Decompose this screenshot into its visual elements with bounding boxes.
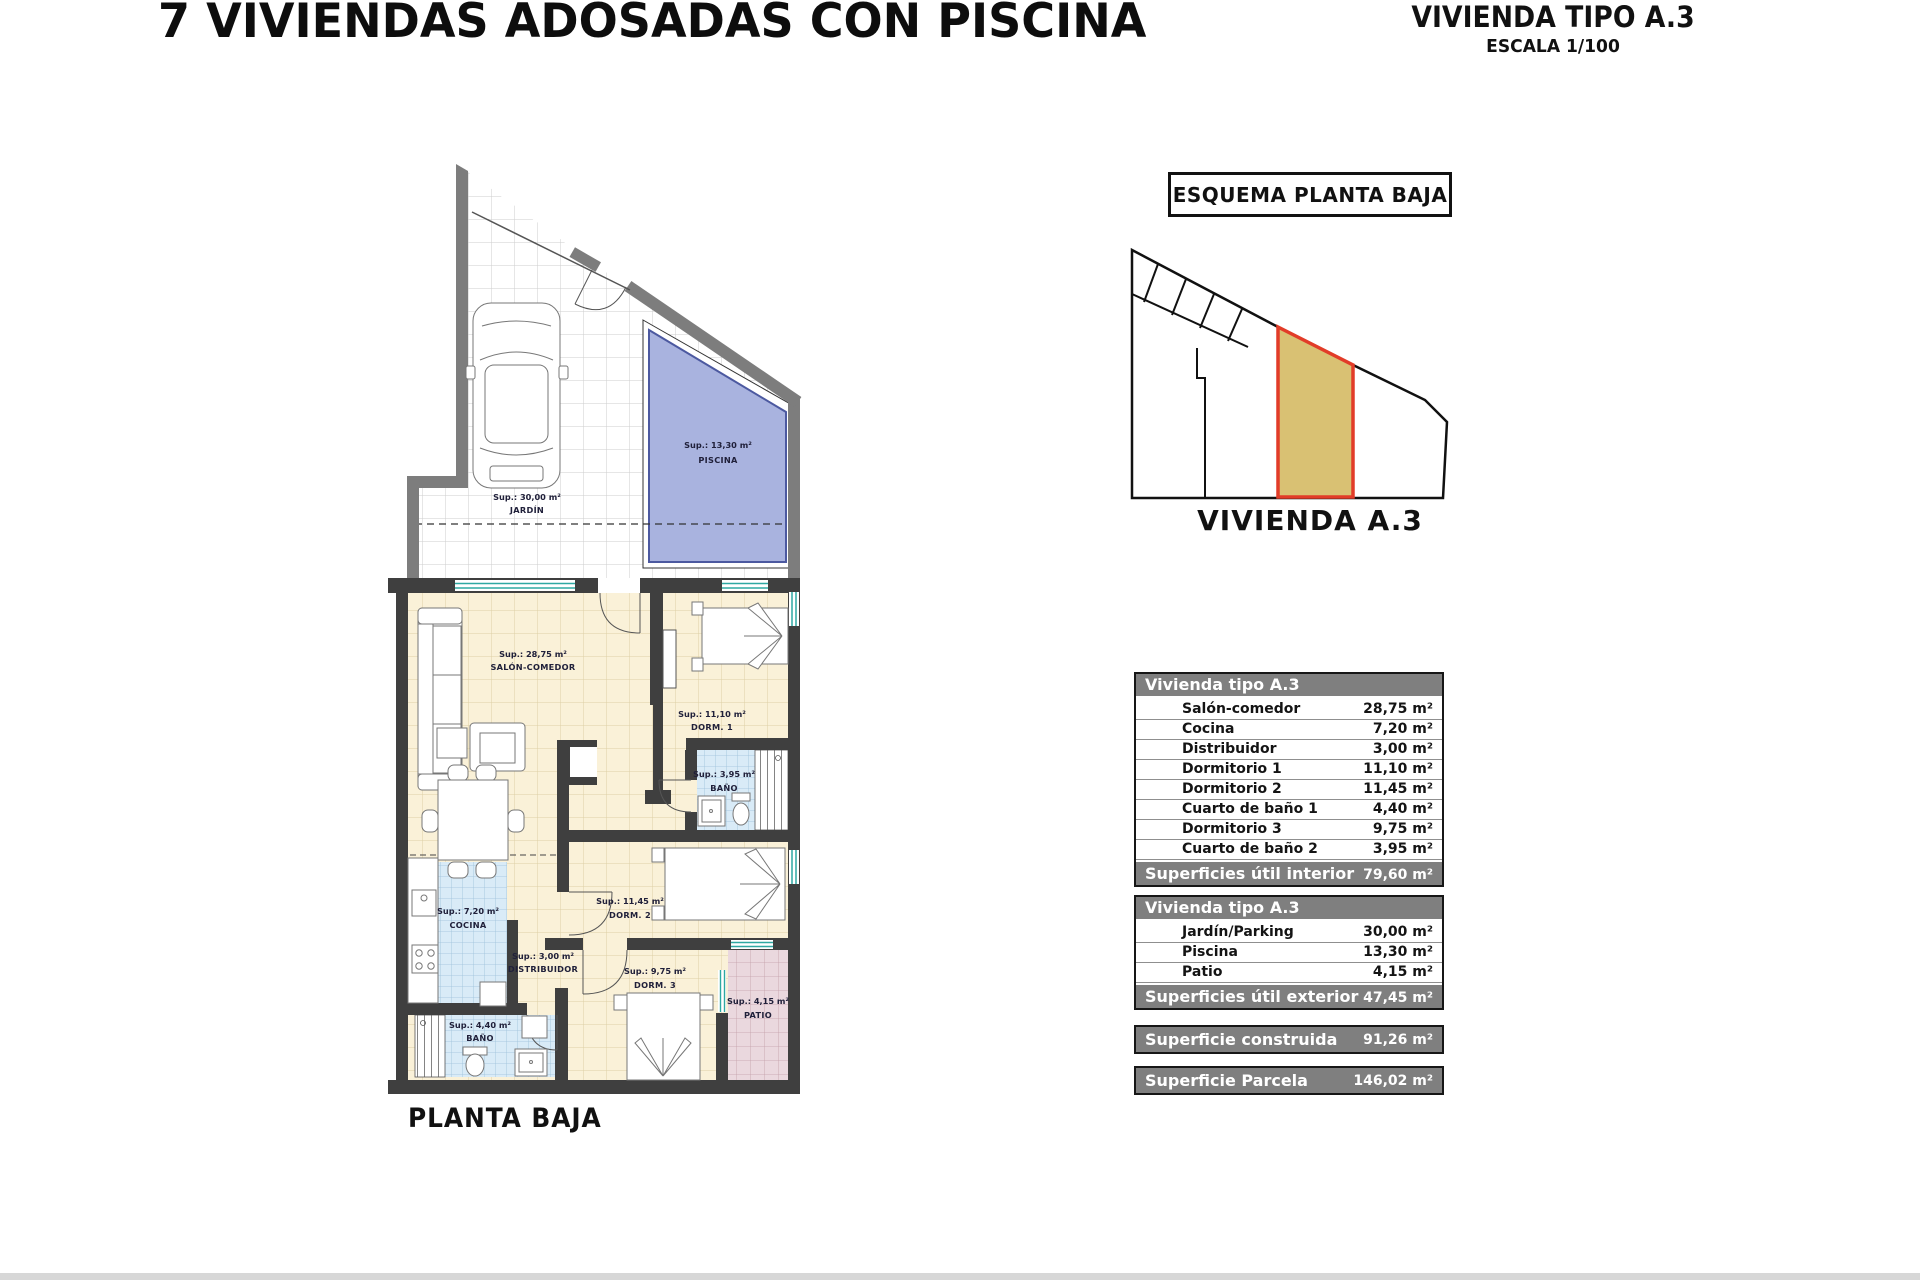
table-row: Dormitorio 211,45 m² xyxy=(1136,780,1442,800)
page-bottom-edge xyxy=(0,1273,1920,1280)
page-title: 7 VIVIENDAS ADOSADAS CON PISCINA xyxy=(158,0,1146,49)
car xyxy=(466,303,568,488)
table-row: Salón-comedor28,75 m² xyxy=(1136,700,1442,720)
bano2-label: BAÑO xyxy=(710,783,738,793)
bano2-sup-label: Sup.: 3,95 m² xyxy=(693,769,755,779)
cocina-sup-label: Sup.: 7,20 m² xyxy=(437,906,499,916)
exterior-table-header: Vivienda tipo A.3 xyxy=(1136,897,1442,919)
bed-dorm3 xyxy=(614,993,713,1080)
dorm3-label: DORM. 3 xyxy=(634,980,676,990)
plan-type-block: VIVIENDA TIPO A.3 ESCALA 1/100 xyxy=(1398,2,1708,57)
exterior-total-bar: Superficies útil exterior 47,45 m² xyxy=(1136,983,1442,1008)
distribuidor-label: DISTRIBUIDOR xyxy=(508,964,579,974)
side-table xyxy=(437,728,467,758)
highlighted-parcel xyxy=(1278,327,1353,497)
table-row: Patio4,15 m² xyxy=(1136,963,1442,983)
dorm2-label: DORM. 2 xyxy=(609,910,651,920)
table-row: Piscina13,30 m² xyxy=(1136,943,1442,963)
bath2-fixtures xyxy=(698,793,750,826)
site-schematic xyxy=(1100,170,1470,550)
piscina-label: PISCINA xyxy=(698,455,738,465)
plan-type-title: VIVIENDA TIPO A.3 xyxy=(1410,2,1695,34)
armchair xyxy=(470,723,525,771)
plan-caption: PLANTA BAJA xyxy=(408,1103,602,1134)
jardin-sup-label: Sup.: 30,00 m² xyxy=(493,492,561,502)
bano1-label: BAÑO xyxy=(466,1033,494,1043)
dorm1-label: DORM. 1 xyxy=(691,722,733,732)
salon-sup-label: Sup.: 28,75 m² xyxy=(499,649,567,659)
dorm2-sup-label: Sup.: 11,45 m² xyxy=(596,896,664,906)
bano1-sup-label: Sup.: 4,40 m² xyxy=(449,1020,511,1030)
distribuidor-sup-label: Sup.: 3,00 m² xyxy=(512,951,574,961)
patio-sup-label: Sup.: 4,15 m² xyxy=(727,996,789,1006)
schematic-caption: VIVIENDA A.3 xyxy=(1150,504,1470,537)
table-row: Cuarto de baño 14,40 m² xyxy=(1136,800,1442,820)
exterior-areas-table: Vivienda tipo A.3 Jardín/Parking30,00 m²… xyxy=(1134,895,1444,1010)
table-row: Cuarto de baño 23,95 m² xyxy=(1136,840,1442,860)
dorm3-sup-label: Sup.: 9,75 m² xyxy=(624,966,686,976)
piscina-sup-label: Sup.: 13,30 m² xyxy=(684,440,752,450)
floor-plan: Sup.: 30,00 m² JARDÍN Sup.: 13,30 m² PIS… xyxy=(330,150,810,1100)
salon-label: SALÓN-COMEDOR xyxy=(490,661,575,672)
closet-dorm1 xyxy=(663,630,676,688)
cocina-label: COCINA xyxy=(449,920,486,930)
interior-total-bar: Superficies útil interior 79,60 m² xyxy=(1136,860,1442,885)
bed-dorm1 xyxy=(692,602,788,671)
interior-table-header: Vivienda tipo A.3 xyxy=(1136,674,1442,696)
table-row: Jardín/Parking30,00 m² xyxy=(1136,923,1442,943)
dorm1-sup-label: Sup.: 11,10 m² xyxy=(678,709,746,719)
bed-dorm2 xyxy=(652,848,785,920)
scale-label: ESCALA 1/100 xyxy=(1406,37,1701,57)
wall-niche xyxy=(570,747,597,777)
patio-label: PATIO xyxy=(744,1010,772,1020)
table-row: Distribuidor3,00 m² xyxy=(1136,740,1442,760)
superficie-construida-bar: Superficie construida 91,26 m² xyxy=(1134,1025,1444,1054)
table-row: Cocina7,20 m² xyxy=(1136,720,1442,740)
entrance-opening xyxy=(598,578,640,593)
table-row: Dormitorio 39,75 m² xyxy=(1136,820,1442,840)
table-row: Dormitorio 111,10 m² xyxy=(1136,760,1442,780)
closet-bath2 xyxy=(755,750,788,830)
jardin-label: JARDÍN xyxy=(509,504,544,515)
interior-areas-table: Vivienda tipo A.3 Salón-comedor28,75 m² … xyxy=(1134,672,1444,887)
sofa xyxy=(418,608,462,790)
superficie-parcela-bar: Superficie Parcela 146,02 m² xyxy=(1134,1066,1444,1095)
closet-bath1 xyxy=(415,1015,445,1077)
